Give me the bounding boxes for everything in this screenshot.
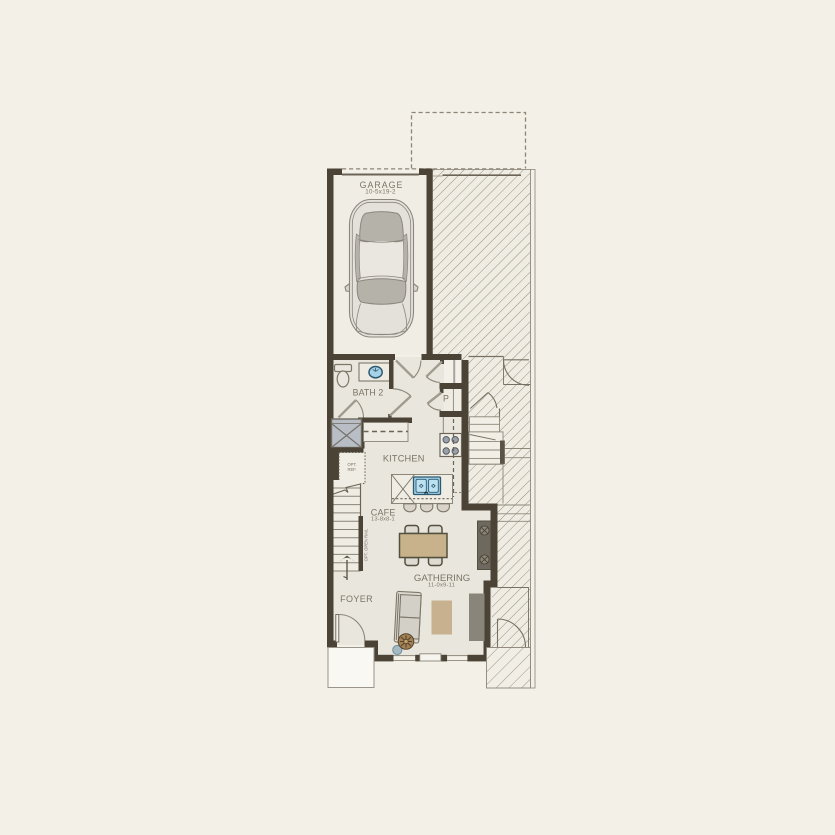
svg-text:OPT. OPEN RAIL: OPT. OPEN RAIL [364,528,369,561]
svg-text:P: P [443,394,449,404]
svg-text:13-8x8-1: 13-8x8-1 [371,517,395,523]
svg-text:REF.: REF. [347,467,356,472]
svg-text:10-5x19-2: 10-5x19-2 [365,188,396,195]
svg-text:KITCHEN: KITCHEN [383,454,425,464]
svg-text:11-0x9-11: 11-0x9-11 [428,582,455,588]
svg-text:BATH 2: BATH 2 [353,387,384,397]
svg-text:FOYER: FOYER [340,594,373,604]
